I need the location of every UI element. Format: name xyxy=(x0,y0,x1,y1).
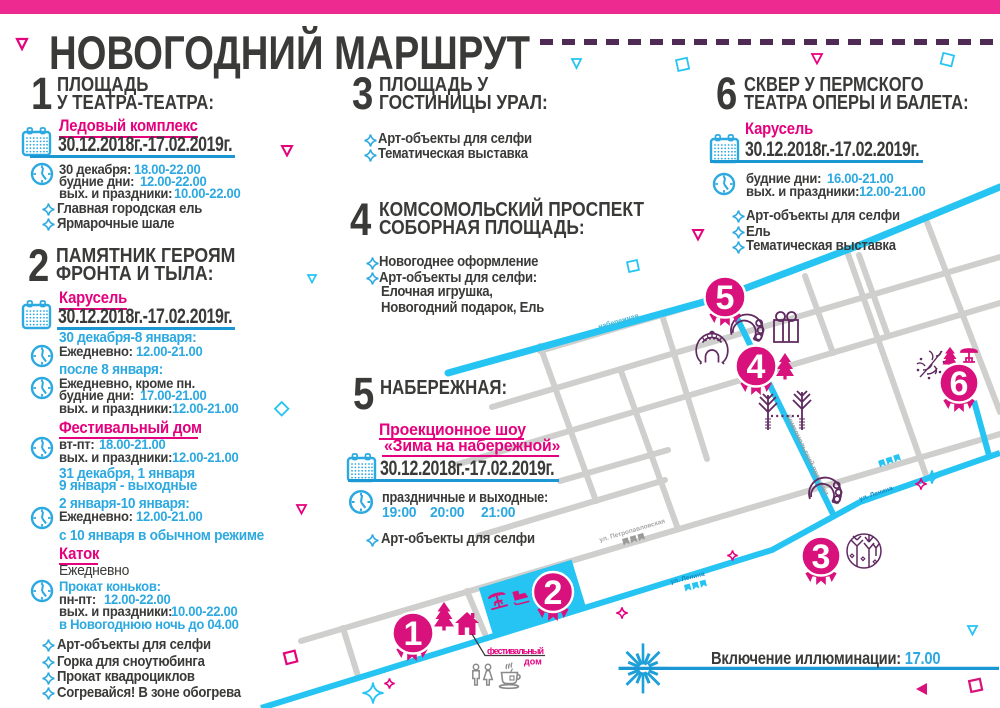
svg-text:5: 5 xyxy=(716,279,735,317)
svg-text:4: 4 xyxy=(747,348,766,386)
svg-text:1: 1 xyxy=(404,615,423,653)
svg-text:6: 6 xyxy=(950,365,969,403)
svg-text:Комсомольский проспект: Комсомольский проспект xyxy=(784,413,831,497)
svg-text:дом: дом xyxy=(524,657,542,667)
svg-text:3: 3 xyxy=(812,538,831,576)
svg-text:2: 2 xyxy=(544,574,563,612)
svg-text:фестивальный: фестивальный xyxy=(487,646,544,656)
